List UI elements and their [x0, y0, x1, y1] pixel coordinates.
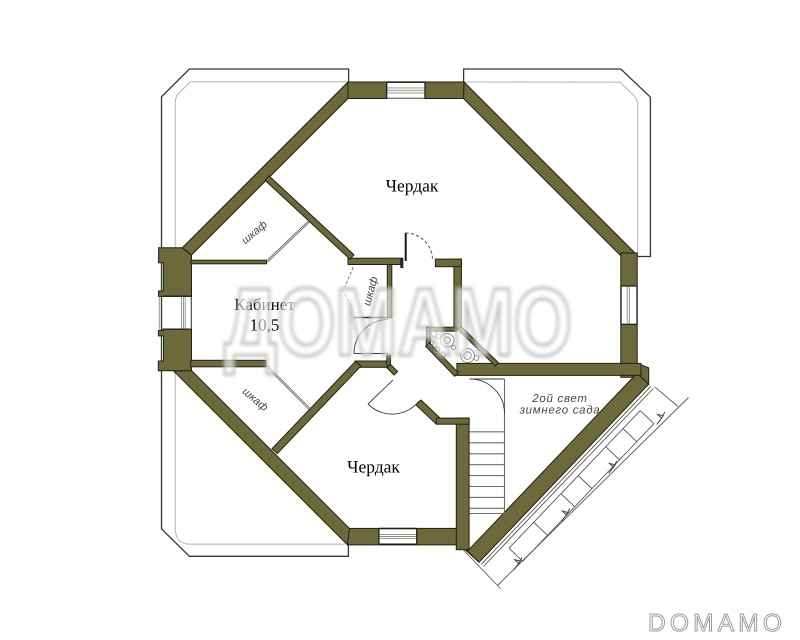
svg-text:Чердак: Чердак: [386, 176, 439, 196]
svg-text:ДОМАМО: ДОМАМО: [224, 269, 572, 376]
svg-text:зимнего сада: зимнего сада: [519, 405, 601, 417]
svg-text:DOMAMO: DOMAMO: [648, 610, 786, 637]
svg-text:шкаф: шкаф: [239, 219, 269, 247]
svg-text:шкаф: шкаф: [240, 386, 270, 414]
svg-text:Чердак: Чердак: [347, 457, 400, 477]
svg-text:2ой свет: 2ой свет: [531, 393, 587, 405]
